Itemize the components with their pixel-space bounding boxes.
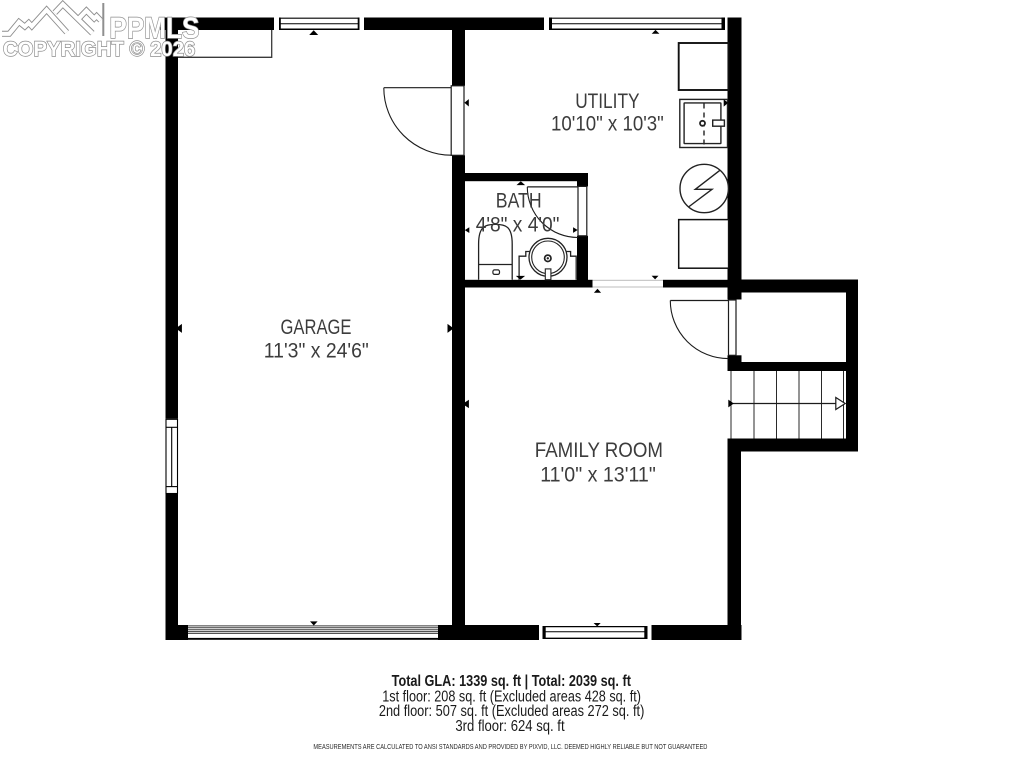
svg-text:Total GLA: 1339 sq. ft | Total: Total GLA: 1339 sq. ft | Total: 2039 sq.…: [392, 673, 632, 690]
svg-text:11'0" x 13'11": 11'0" x 13'11": [540, 462, 656, 486]
svg-text:GARAGE: GARAGE: [281, 315, 352, 339]
svg-text:COPYRIGHT © 2026: COPYRIGHT © 2026: [3, 38, 195, 61]
svg-text:BATH: BATH: [496, 188, 542, 212]
svg-text:11'3" x 24'6": 11'3" x 24'6": [264, 339, 369, 363]
svg-text:UTILITY: UTILITY: [575, 89, 639, 113]
svg-text:10'10" x 10'3": 10'10" x 10'3": [551, 112, 664, 136]
svg-text:4'8" x 4'0": 4'8" x 4'0": [476, 212, 560, 236]
svg-text:3rd floor: 624 sq. ft: 3rd floor: 624 sq. ft: [455, 718, 565, 735]
svg-text:MEASUREMENTS ARE CALCULATED TO: MEASUREMENTS ARE CALCULATED TO ANSI STAN…: [313, 744, 707, 751]
svg-text:FAMILY ROOM: FAMILY ROOM: [535, 438, 663, 462]
